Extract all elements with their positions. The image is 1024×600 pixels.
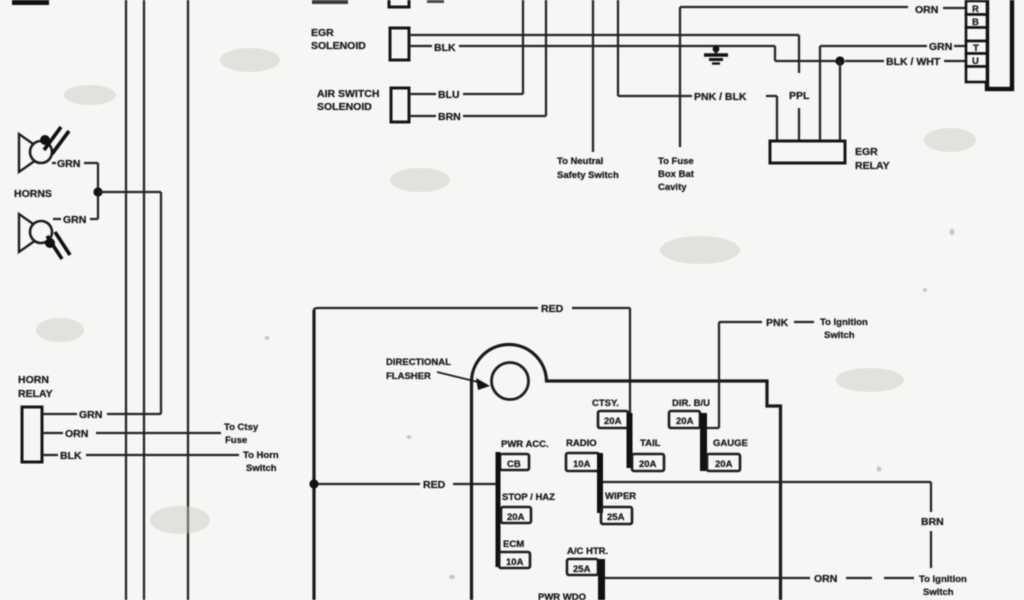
svg-text:A/C HTR.: A/C HTR. [567,546,608,557]
svg-text:HORN: HORN [18,374,49,386]
svg-text:To Fuse: To Fuse [658,156,694,167]
svg-text:AIR SWITCH: AIR SWITCH [317,88,379,100]
svg-text:To Ctsy: To Ctsy [224,422,259,433]
svg-text:10A: 10A [573,459,591,470]
svg-text:To Ignition: To Ignition [919,574,967,585]
svg-text:SOLENOID: SOLENOID [317,101,372,113]
svg-text:GRN: GRN [79,409,102,421]
svg-text:Fuse: Fuse [225,435,247,446]
svg-text:RED: RED [541,303,564,315]
svg-text:20A: 20A [507,512,525,523]
svg-text:GAUGE: GAUGE [713,438,748,449]
svg-text:PWR WDO: PWR WDO [538,592,586,600]
svg-text:PNK / BLK: PNK / BLK [694,91,747,103]
svg-text:RED: RED [423,479,446,491]
svg-text:GRN: GRN [63,214,86,226]
svg-text:EGR: EGR [855,146,878,158]
svg-text:Switch: Switch [246,463,277,474]
svg-text:STOP / HAZ: STOP / HAZ [502,492,555,503]
svg-text:TAIL: TAIL [640,438,661,449]
svg-text:Box Bat: Box Bat [658,169,695,180]
svg-text:20A: 20A [715,459,733,470]
svg-text:PNK: PNK [766,317,789,329]
svg-text:BLK: BLK [434,42,456,54]
svg-text:To Horn: To Horn [243,450,279,461]
svg-text:HORNS: HORNS [14,188,52,200]
svg-text:10A: 10A [506,557,524,568]
svg-text:RADIO: RADIO [566,438,597,449]
svg-text:PPL: PPL [789,90,810,102]
svg-text:WIPER: WIPER [605,491,636,502]
svg-text:Switch: Switch [824,330,855,341]
svg-text:Cavity: Cavity [658,182,687,193]
svg-text:ORN: ORN [814,573,837,585]
svg-text:20A: 20A [639,459,657,470]
svg-text:To Neutral: To Neutral [557,156,603,167]
svg-text:RELAY: RELAY [855,160,890,172]
svg-text:DIRECTIONAL: DIRECTIONAL [386,357,451,368]
svg-text:CB: CB [507,459,521,470]
svg-text:SOLENOID: SOLENOID [311,40,366,52]
svg-text:Safety Switch: Safety Switch [557,170,619,181]
svg-text:BRN: BRN [921,516,944,528]
svg-text:BLK: BLK [60,450,82,462]
svg-text:ORN: ORN [915,4,938,16]
svg-text:RELAY: RELAY [18,388,53,400]
svg-text:FLASHER: FLASHER [386,371,431,382]
svg-text:ORN: ORN [65,428,88,440]
svg-text:PWR ACC.: PWR ACC. [501,439,549,450]
svg-text:Switch: Switch [923,587,954,598]
svg-text:DIR. B/U: DIR. B/U [672,398,710,409]
svg-text:BRN: BRN [438,111,461,123]
svg-text:20A: 20A [604,416,622,427]
svg-text:20A: 20A [676,416,694,427]
svg-text:BLK / WHT: BLK / WHT [886,56,941,68]
svg-text:GRN: GRN [929,41,952,53]
svg-text:25A: 25A [607,512,625,523]
svg-text:EGR: EGR [311,27,334,39]
svg-text:ECM: ECM [503,539,524,550]
svg-text:GRN: GRN [57,158,80,170]
svg-text:CTSY.: CTSY. [592,398,619,409]
svg-text:To Ignition: To Ignition [820,317,868,328]
svg-text:25A: 25A [573,564,591,575]
svg-text:BLU: BLU [438,89,460,101]
